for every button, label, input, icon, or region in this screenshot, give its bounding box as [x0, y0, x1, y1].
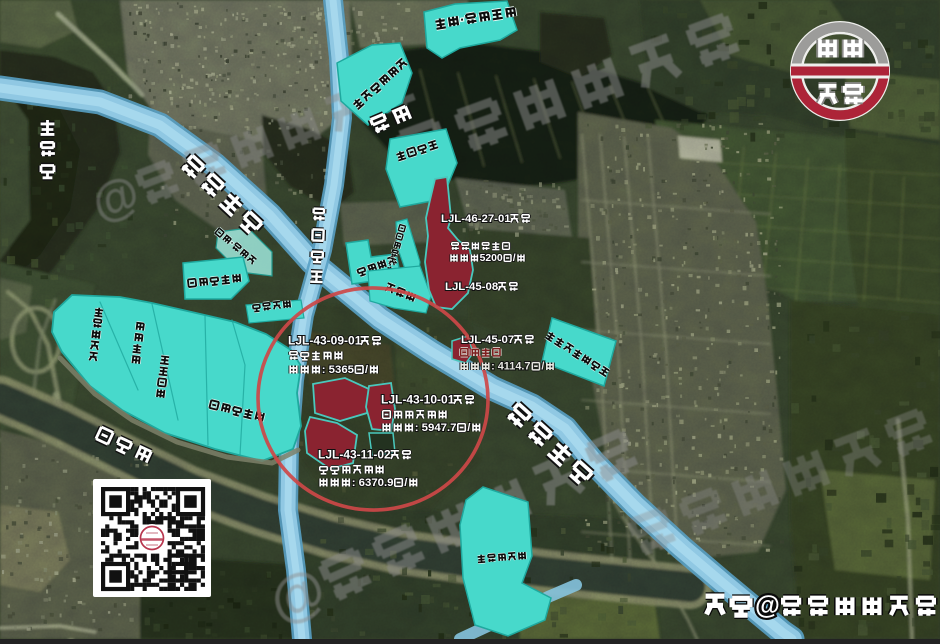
svg-text:LJL-43-11-02: LJL-43-11-02 — [318, 447, 391, 461]
svg-text:: 6370.9: : 6370.9 — [352, 477, 394, 489]
svg-text:LJL-46-27-01: LJL-46-27-01 — [441, 213, 511, 225]
svg-text:: 4114.7: : 4114.7 — [491, 361, 530, 373]
svg-text:LJL-45-07: LJL-45-07 — [461, 334, 514, 346]
svg-text:: 5365: : 5365 — [322, 364, 355, 376]
svg-text:LJL-43-09-01: LJL-43-09-01 — [288, 333, 362, 347]
svg-text:: 5947.7: : 5947.7 — [415, 422, 457, 434]
svg-text:/: / — [541, 361, 544, 373]
svg-text:LJL-43-10-01: LJL-43-10-01 — [381, 392, 455, 406]
svg-text:/: / — [513, 253, 516, 264]
svg-text:5200: 5200 — [480, 253, 503, 264]
svg-text:@: @ — [755, 592, 780, 620]
svg-text:LJL-45-08: LJL-45-08 — [445, 281, 498, 293]
